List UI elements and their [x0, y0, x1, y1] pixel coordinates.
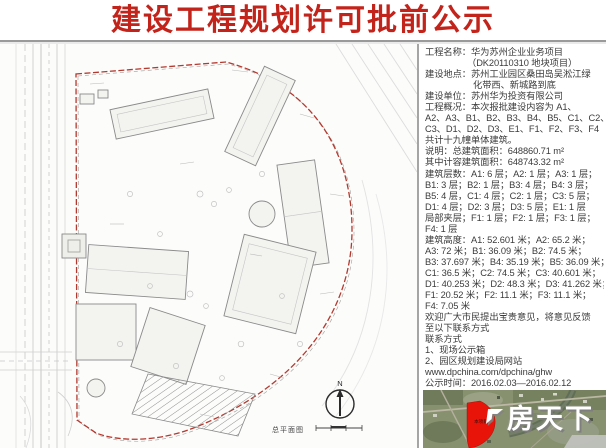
info-line: 公示时间：2016.02.03—2016.02.12: [425, 378, 604, 389]
info-panel: 工程名称：华为苏州企业业务项目（DK20110310 地块项目）建设地点：苏州工…: [417, 44, 606, 448]
info-line: 1、现场公示箱: [425, 345, 604, 356]
info-line: 2、园区规划建设局网站: [425, 356, 604, 367]
info-line: C1: 36.5 米；C2: 74.5 米；C3: 40.601 米；: [425, 268, 604, 279]
info-line: 化带西、新城路到底: [425, 80, 604, 91]
site-plan-drawing: N 总平面图: [0, 44, 417, 448]
info-line: 说明：总建筑面积：648860.71 m²: [425, 146, 604, 157]
info-line: C3、D1、D2、D3、E1、F1、F2、F3、F4: [425, 124, 604, 135]
north-label: N: [337, 379, 342, 388]
info-line: D1: 4 层；D2: 3 层；D3: 5 层；E1: 1 层: [425, 202, 604, 213]
info-line: 至以下联系方式: [425, 323, 604, 334]
info-line: B5: 4 层，C1: 4 层；C2: 1 层；C3: 5 层；: [425, 191, 604, 202]
site-highlight-label: 本项目: [474, 418, 488, 425]
info-line: F4: 1 层: [425, 224, 604, 235]
info-line: A3: 72 米；B1: 36.09 米；B2: 74.5 米；: [425, 246, 604, 257]
site-plan-area: N 总平面图: [0, 44, 417, 448]
info-line: 工程概况：本次报批建设内容为 A1、: [425, 102, 604, 113]
notice-page: 建设工程规划许可批前公示: [0, 0, 606, 448]
info-line: （DK20110310 地块项目）: [425, 58, 604, 69]
info-line: 建设地点：苏州工业园区桑田岛吴淞江绿: [425, 69, 604, 80]
info-line: 局部夹层；F1: 1 层；F2: 1 层；F3: 1 层；: [425, 213, 604, 224]
info-line: 建筑层数：A1: 6 层；A2: 1 层；A3: 1 层；: [425, 169, 604, 180]
info-line: D1: 40.253 米；D2: 48.3 米；D3: 41.262 米；: [425, 279, 604, 290]
info-line: 工程名称：华为苏州企业业务项目: [425, 47, 604, 58]
title-bar: 建设工程规划许可批前公示: [0, 0, 606, 42]
info-line: A2、A3、B1、B2、B3、B4、B5、C1、C2、: [425, 113, 604, 124]
info-line: B3: 37.697 米；B4: 35.19 米；B5: 36.09 米；: [425, 257, 604, 268]
info-line: 共计十九幢单体建筑。: [425, 135, 604, 146]
info-line: 欢迎广大市民提出宝贵意见，将意见反馈: [425, 312, 604, 323]
info-line: F1: 20.52 米；F2: 11.1 米；F3: 11.1 米；: [425, 290, 604, 301]
info-line: B1: 3 层；B2: 1 层；B3: 4 层；B4: 3 层；: [425, 180, 604, 191]
info-line: 建筑高度：A1: 52.601 米；A2: 65.2 米；: [425, 235, 604, 246]
info-line: F4: 7.05 米: [425, 301, 604, 312]
info-line: 建设单位：苏州华为投资有限公司: [425, 91, 604, 102]
info-line: 其中计容建筑面积：648743.32 m²: [425, 157, 604, 168]
plan-label: 总平面图: [272, 425, 304, 434]
page-title: 建设工程规划许可批前公示: [0, 0, 606, 41]
watermark-ribbon: [564, 435, 606, 448]
info-line: 联系方式: [425, 334, 604, 345]
info-line: www.dpchina.com/dpchina/ghw: [425, 367, 604, 378]
